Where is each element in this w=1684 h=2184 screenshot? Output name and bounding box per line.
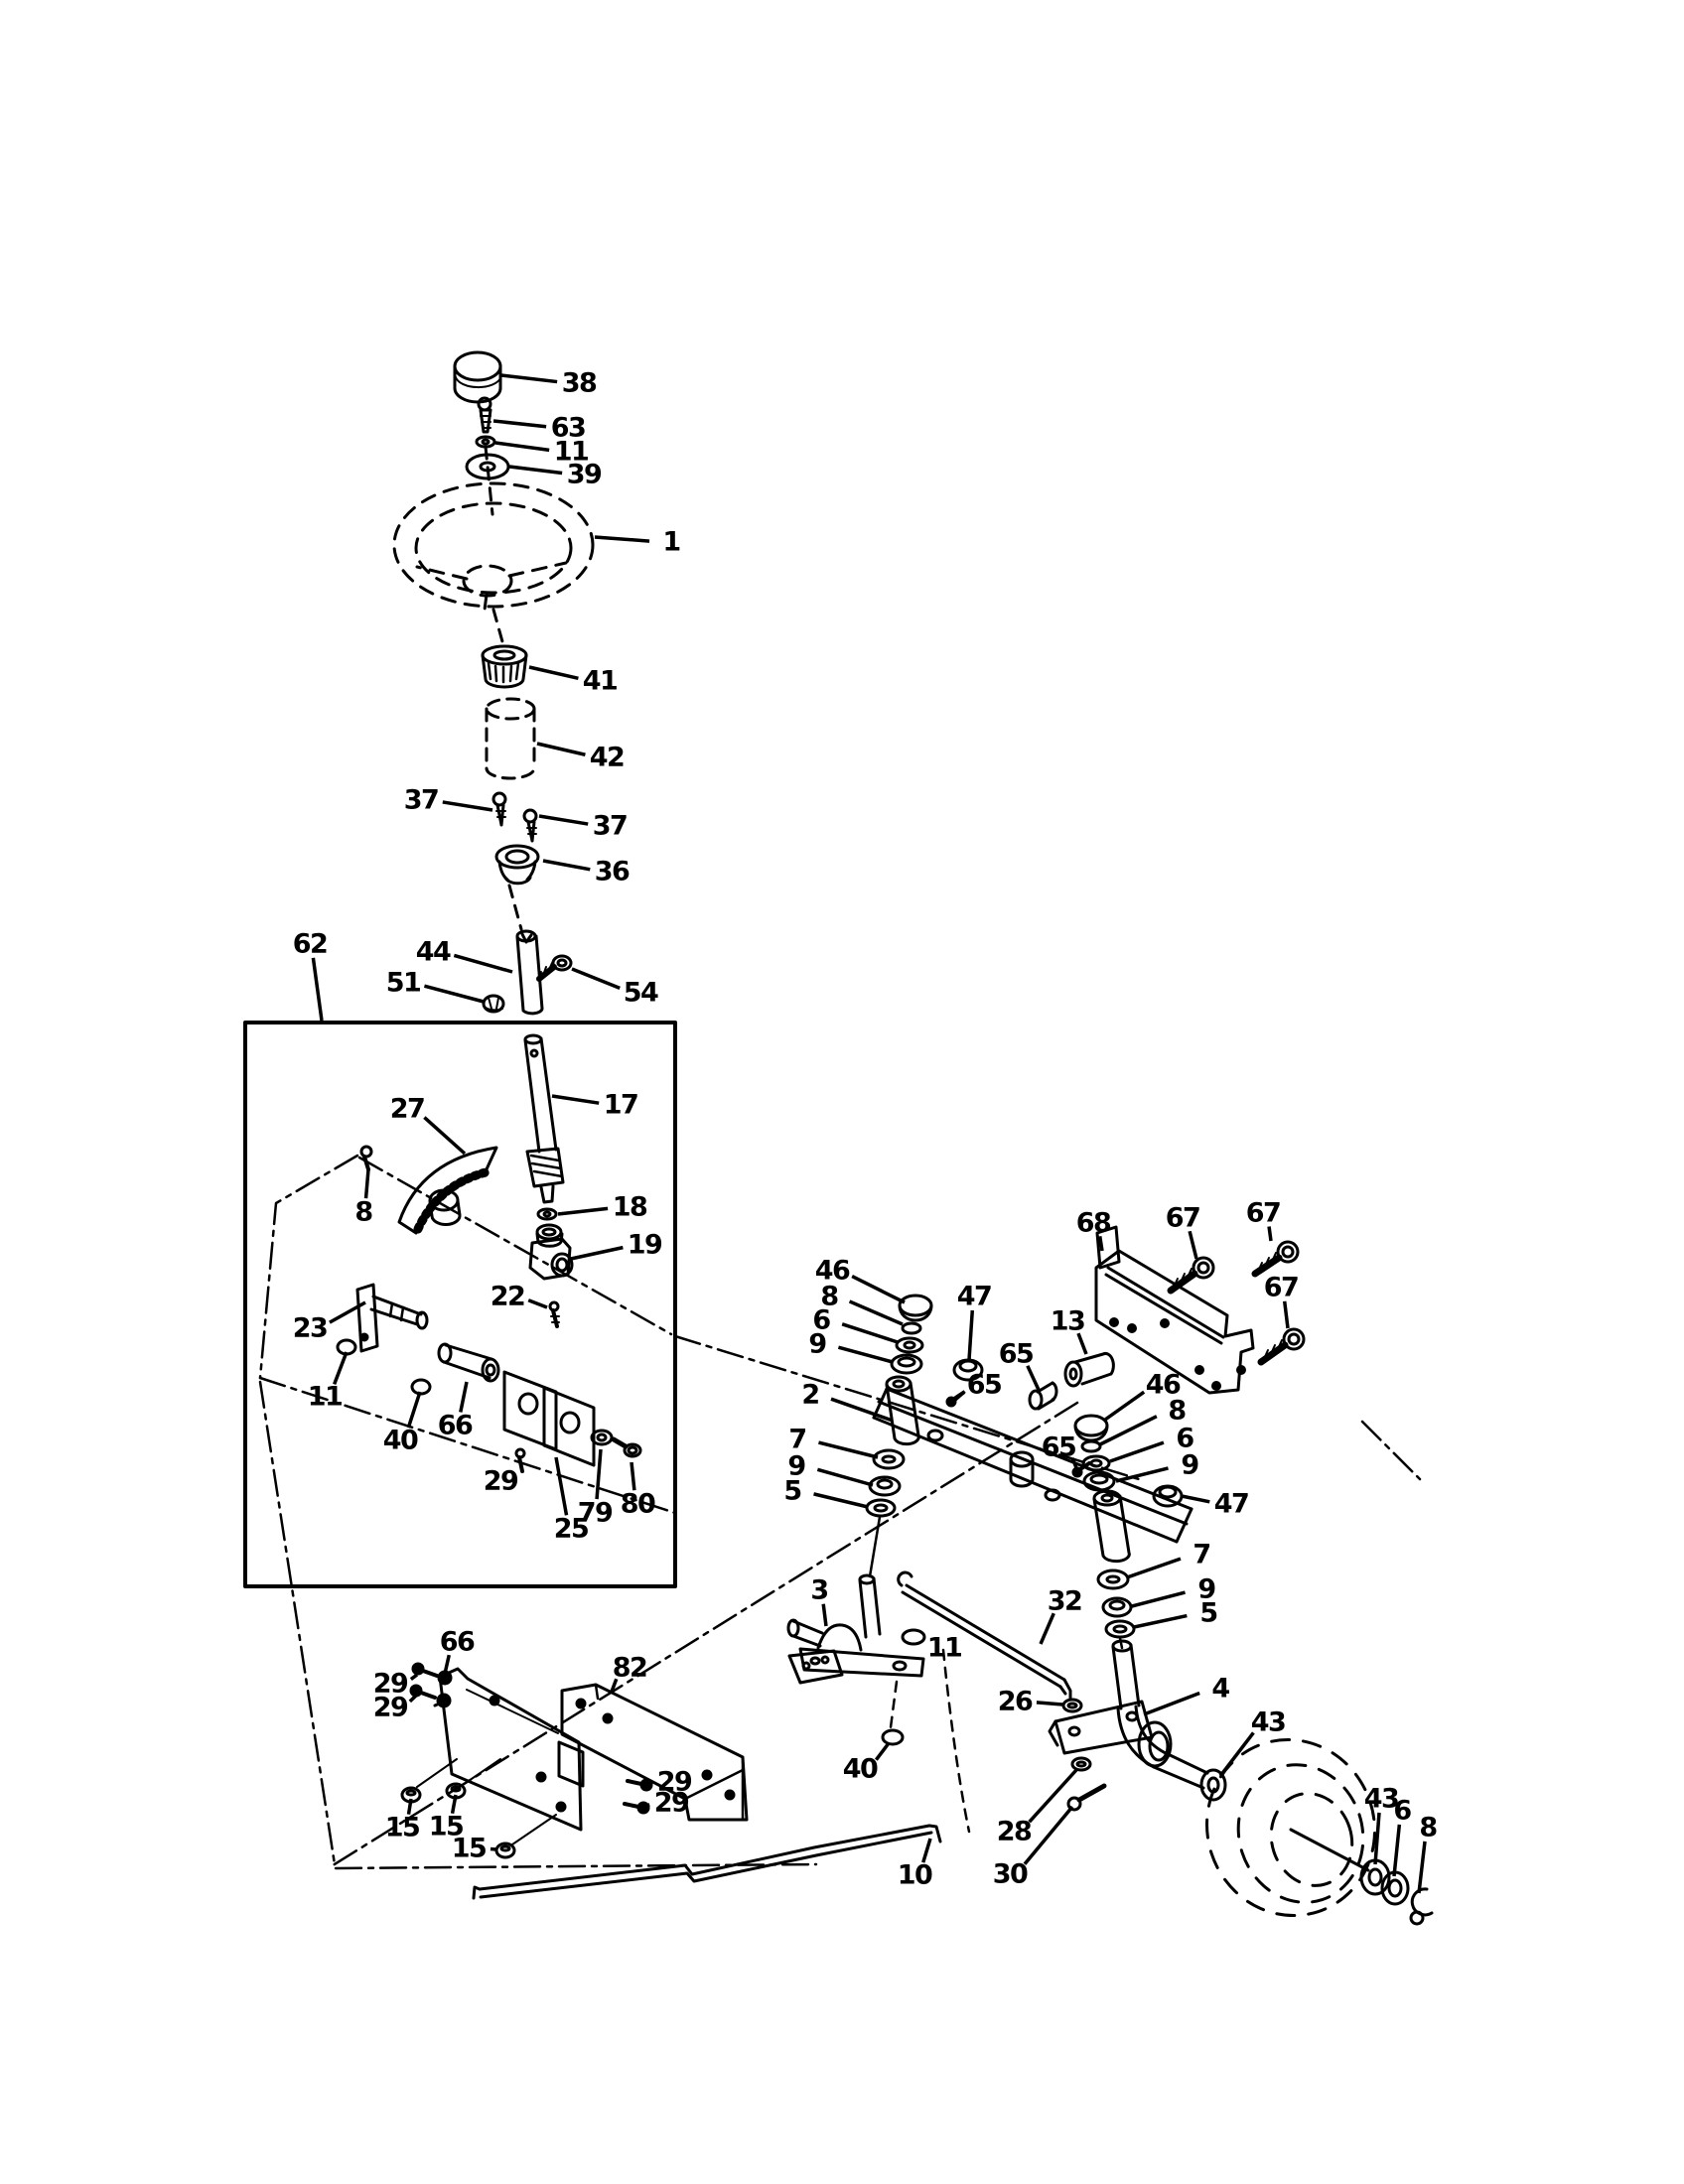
leader-line-6 (842, 1324, 898, 1342)
leader-line-11 (335, 1352, 347, 1384)
leader-line-4 (1144, 1693, 1199, 1714)
leader-line-22 (528, 1300, 547, 1307)
leader-line-43 (1375, 1813, 1379, 1864)
leader-line-47 (969, 1310, 972, 1360)
leader-line-19 (571, 1248, 623, 1259)
leader-line-44 (454, 955, 512, 972)
leader-line-1 (595, 537, 649, 541)
leader-line-41 (529, 667, 578, 678)
leader-line-8 (366, 1169, 368, 1198)
leader-line-38 (501, 375, 557, 382)
leader-line-8 (1419, 1842, 1425, 1893)
leader-line-15 (453, 1795, 456, 1814)
leader-line-9 (1116, 1468, 1168, 1481)
leader-line-26 (1037, 1703, 1062, 1705)
leader-line-66 (445, 1655, 449, 1674)
leader-line-62 (313, 958, 322, 1021)
leader-line-82 (612, 1679, 617, 1692)
leader-line-67 (1285, 1301, 1288, 1328)
leader-line-37 (443, 802, 492, 810)
leader-line-7 (818, 1442, 878, 1457)
leader-line-42 (537, 744, 585, 754)
leader-line-23 (330, 1302, 365, 1322)
leader-line-29 (645, 1783, 652, 1785)
leader-line-25 (556, 1457, 567, 1515)
leader-line-80 (631, 1462, 634, 1490)
leader-line-7 (1127, 1559, 1181, 1577)
leader-line-67 (1190, 1231, 1196, 1259)
leader-line-79 (597, 1449, 601, 1499)
leader-line-6 (1110, 1442, 1164, 1461)
leader-line-43 (1220, 1732, 1253, 1776)
callout-leader-lines (0, 0, 1684, 2184)
leader-line-10 (923, 1839, 930, 1862)
leader-line-28 (1030, 1770, 1076, 1822)
leader-line-29 (642, 1805, 649, 1807)
leader-line-11 (495, 443, 549, 450)
leader-line-65 (954, 1392, 965, 1401)
leader-line-32 (1041, 1613, 1053, 1644)
parts-diagram-page: 3863113914142373736624454511727818192223… (0, 0, 1684, 2184)
leader-line-18 (558, 1208, 608, 1214)
leader-line-40 (408, 1392, 420, 1428)
leader-line-9 (817, 1469, 873, 1485)
leader-line-40 (876, 1743, 889, 1760)
leader-line-8 (850, 1301, 903, 1324)
leader-line-9 (838, 1347, 893, 1362)
leader-line-54 (572, 969, 620, 988)
leader-line-29 (410, 1695, 417, 1702)
leader-line-51 (424, 986, 484, 1002)
leader-line-9 (1132, 1592, 1186, 1606)
leader-line-30 (1025, 1807, 1072, 1864)
leader-line-39 (509, 467, 562, 474)
leader-line-65 (1072, 1458, 1077, 1470)
leader-line-13 (1078, 1333, 1086, 1354)
leader-line-17 (552, 1096, 599, 1103)
leader-line-29 (411, 1675, 417, 1680)
leader-line-2 (831, 1399, 893, 1421)
leader-line-47 (1182, 1496, 1209, 1502)
leader-line-46 (852, 1277, 905, 1302)
leader-line-3 (823, 1604, 826, 1626)
leader-line-37 (539, 816, 588, 824)
leader-line-65 (1028, 1366, 1039, 1390)
leader-line-27 (424, 1118, 465, 1154)
leader-line-63 (493, 421, 546, 427)
leader-line-8 (1100, 1417, 1157, 1444)
leader-line-46 (1105, 1392, 1144, 1420)
leader-line-6 (1394, 1825, 1399, 1876)
leader-line-15 (491, 1848, 496, 1849)
leader-line-15 (409, 1799, 411, 1815)
leader-line-68 (1100, 1236, 1102, 1251)
leader-line-5 (814, 1494, 868, 1507)
leader-line-5 (1134, 1616, 1187, 1627)
leader-line-66 (461, 1382, 467, 1412)
leader-line-36 (543, 861, 590, 870)
leader-line-67 (1269, 1226, 1271, 1241)
